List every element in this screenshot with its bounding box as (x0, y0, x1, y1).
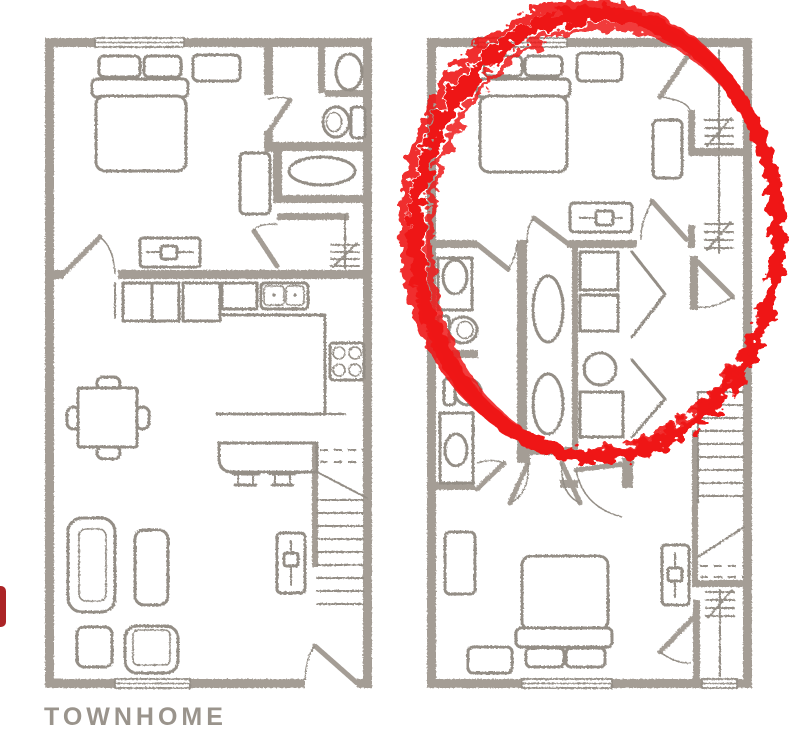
nightstand-icon (468, 647, 512, 673)
kitchen-counter-icon (217, 315, 325, 414)
sink-icon (336, 54, 362, 90)
bathroom-first-floor (289, 54, 365, 268)
living-room (68, 518, 305, 673)
bifold-door-icon (632, 252, 665, 337)
sink-icon (445, 434, 467, 466)
armchair-icon (125, 626, 178, 673)
wardrobe-icon (445, 532, 475, 594)
master-bed-icon (92, 56, 188, 171)
plan-title: TOWNHOME (44, 703, 227, 732)
bifold-door-icon (632, 360, 665, 437)
townhome-floorplan (0, 0, 800, 743)
wardrobe-icon (240, 153, 270, 214)
dresser-tv-icon (140, 238, 200, 267)
tv-stand-icon (277, 533, 305, 593)
bar-stool-icon (270, 474, 295, 485)
closet-rod-icon (706, 590, 734, 676)
bedroom-2 (445, 532, 734, 676)
toilet-icon (323, 107, 365, 138)
double-kitchen-sink-icon (261, 283, 308, 309)
kitchen-cabinet-icon (222, 283, 257, 309)
washer-dryer-icon (580, 252, 618, 331)
bathtub-icon (533, 276, 563, 342)
washer-dryer-icon (580, 392, 623, 437)
coffee-table-icon (135, 530, 168, 605)
bar-stool-icon (233, 474, 258, 485)
kitchen-cabinet-icon (152, 283, 179, 321)
kitchen-cabinet-icon (183, 283, 220, 321)
dining-set (67, 377, 149, 459)
floor-plan-first-floor (45, 38, 372, 688)
sofa-icon (68, 518, 115, 612)
dresser-tv-icon (570, 203, 632, 232)
wardrobe-icon (653, 120, 682, 178)
closet-rod-icon (705, 156, 733, 253)
bathtub-icon (289, 157, 355, 185)
kitchen (115, 283, 364, 485)
sink-icon (443, 260, 467, 294)
floorplan-page: TOWNHOME (0, 0, 800, 743)
dining-table-icon (78, 388, 137, 447)
breakfast-bar-icon (219, 443, 317, 472)
tv-stand-icon (662, 545, 689, 605)
nightstand-icon (193, 55, 240, 81)
water-heater-icon (584, 353, 616, 385)
stove-icon (330, 343, 364, 380)
staircase-icon (317, 450, 367, 604)
bed-icon (516, 556, 612, 667)
bathtub-icon (533, 374, 563, 434)
ottoman-icon (77, 627, 112, 667)
nightstand-icon (577, 53, 622, 81)
closet-rod-icon (331, 215, 359, 268)
floor-plan-second-floor (427, 38, 752, 688)
kitchen-cabinet-icon (123, 283, 152, 321)
red-edge-marker (0, 586, 6, 627)
